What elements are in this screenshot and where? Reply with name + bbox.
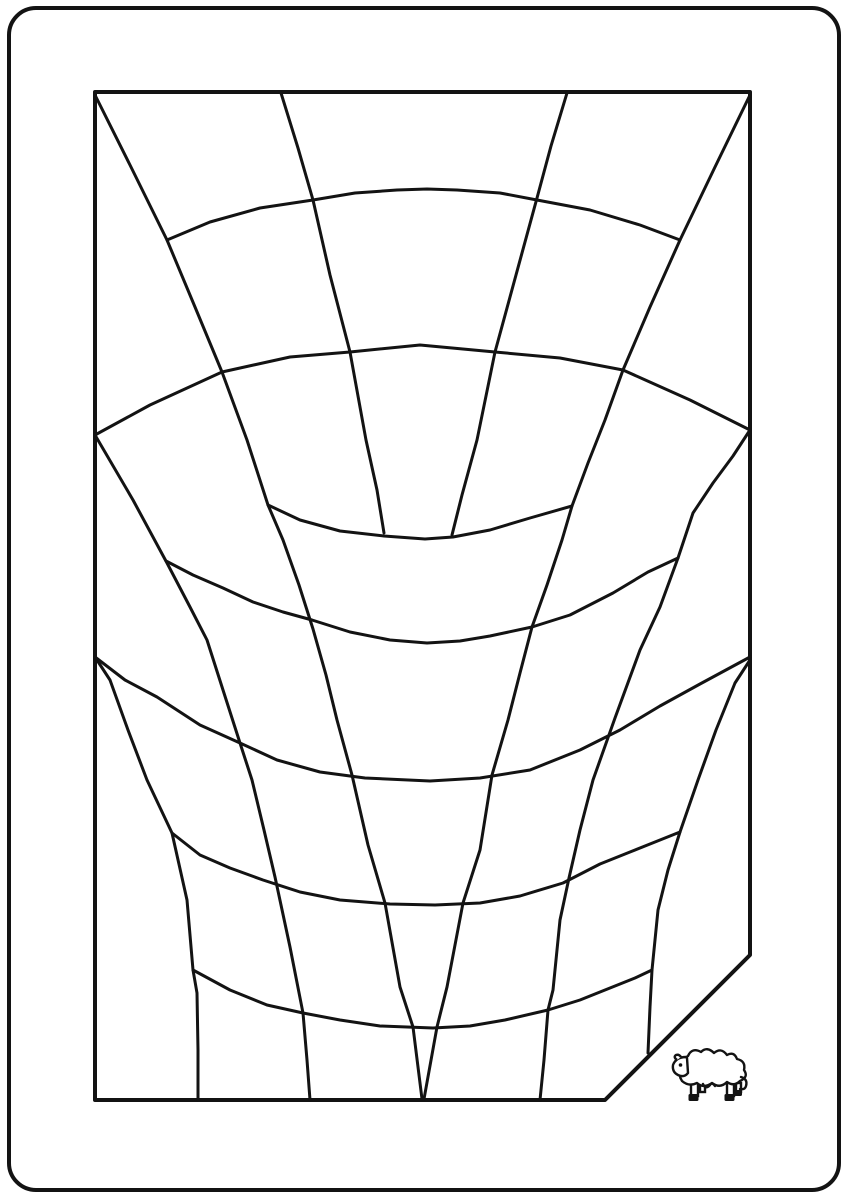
op-art-line-drawing (0, 0, 848, 1200)
background (0, 0, 848, 1200)
page-canvas (0, 0, 848, 1200)
